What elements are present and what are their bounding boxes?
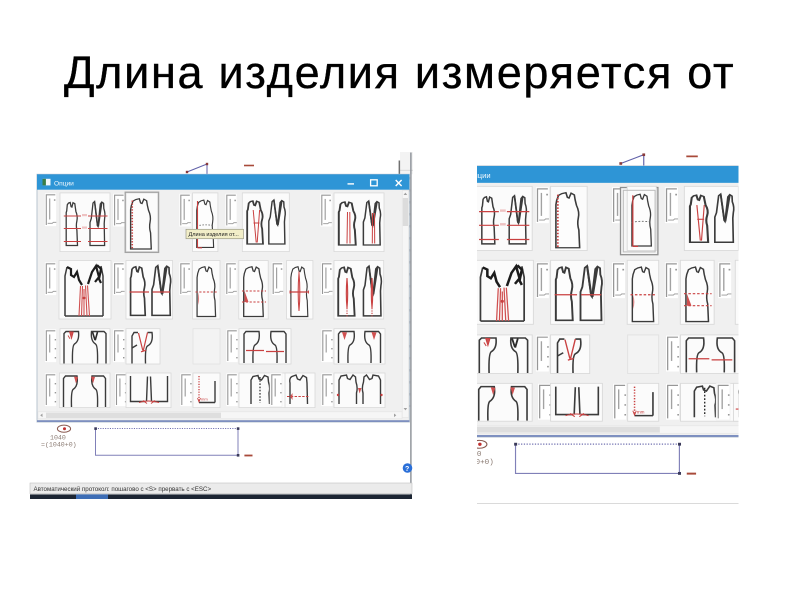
- svg-text:Длина изделия от...: Длина изделия от...: [189, 232, 240, 238]
